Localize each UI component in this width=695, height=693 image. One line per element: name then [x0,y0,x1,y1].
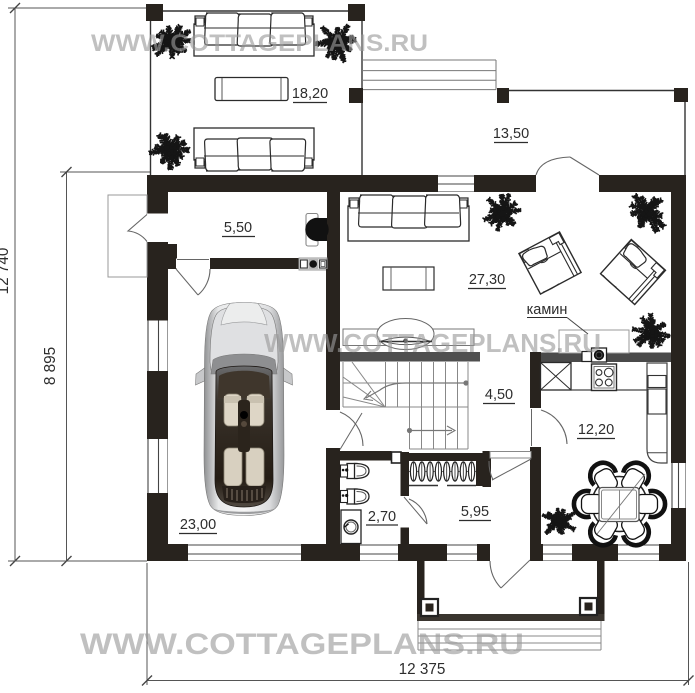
svg-text:12 740: 12 740 [0,248,12,295]
svg-text:WWW.COTTAGEPLANS.RU: WWW.COTTAGEPLANS.RU [264,328,601,358]
svg-text:23,00: 23,00 [180,517,216,533]
svg-text:WWW.COTTAGEPLANS.RU: WWW.COTTAGEPLANS.RU [91,30,428,57]
svg-text:27,30: 27,30 [469,272,505,288]
svg-text:12,20: 12,20 [578,422,614,438]
svg-text:5,50: 5,50 [224,220,252,236]
svg-text:12 375: 12 375 [399,661,446,678]
svg-text:18,20: 18,20 [292,86,328,102]
svg-text:5,95: 5,95 [461,504,489,520]
svg-text:13,50: 13,50 [493,126,529,142]
svg-text:камин: камин [527,302,568,318]
svg-text:WWW.COTTAGEPLANS.RU: WWW.COTTAGEPLANS.RU [80,628,524,661]
svg-text:4,50: 4,50 [485,387,513,403]
svg-text:2,70: 2,70 [368,509,396,525]
svg-text:8 895: 8 895 [42,347,59,385]
